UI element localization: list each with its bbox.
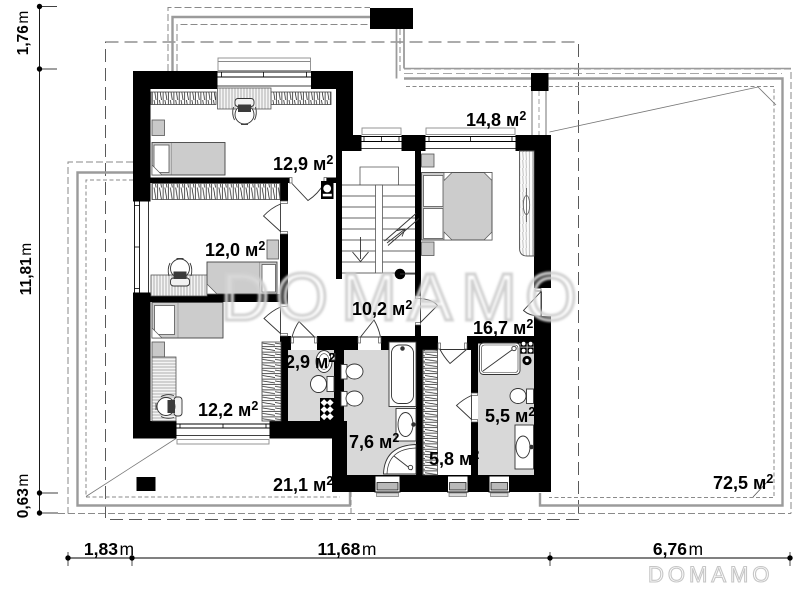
svg-text:16,7 м2: 16,7 м2 xyxy=(473,317,533,338)
svg-text:11,68m: 11,68m xyxy=(318,539,377,559)
svg-text:5,8 м2: 5,8 м2 xyxy=(429,448,479,469)
svg-text:D: D xyxy=(221,260,269,335)
svg-text:A: A xyxy=(408,260,453,335)
svg-text:5,5 м2: 5,5 м2 xyxy=(485,405,535,426)
svg-text:14,8 м2: 14,8 м2 xyxy=(466,109,526,130)
svg-text:O: O xyxy=(276,260,328,335)
svg-text:11,81m: 11,81m xyxy=(18,243,35,295)
svg-text:M: M xyxy=(341,260,397,335)
svg-text:12,9 м2: 12,9 м2 xyxy=(273,153,333,174)
svg-text:6,76m: 6,76m xyxy=(653,539,703,559)
svg-text:1,83m: 1,83m xyxy=(84,539,134,559)
svg-text:21,1 м2: 21,1 м2 xyxy=(273,474,333,495)
svg-text:2,9 м2: 2,9 м2 xyxy=(285,351,335,372)
svg-text:72,5 м2: 72,5 м2 xyxy=(713,472,773,493)
svg-text:0,63m: 0,63m xyxy=(15,474,32,519)
svg-text:12,2 м2: 12,2 м2 xyxy=(198,399,258,420)
svg-text:DOMAMO: DOMAMO xyxy=(648,562,773,587)
svg-text:10,2 м2: 10,2 м2 xyxy=(352,298,412,319)
svg-text:7,6 м2: 7,6 м2 xyxy=(349,431,399,452)
svg-text:12,0 м2: 12,0 м2 xyxy=(205,239,265,260)
svg-text:1,76m: 1,76m xyxy=(15,11,32,56)
